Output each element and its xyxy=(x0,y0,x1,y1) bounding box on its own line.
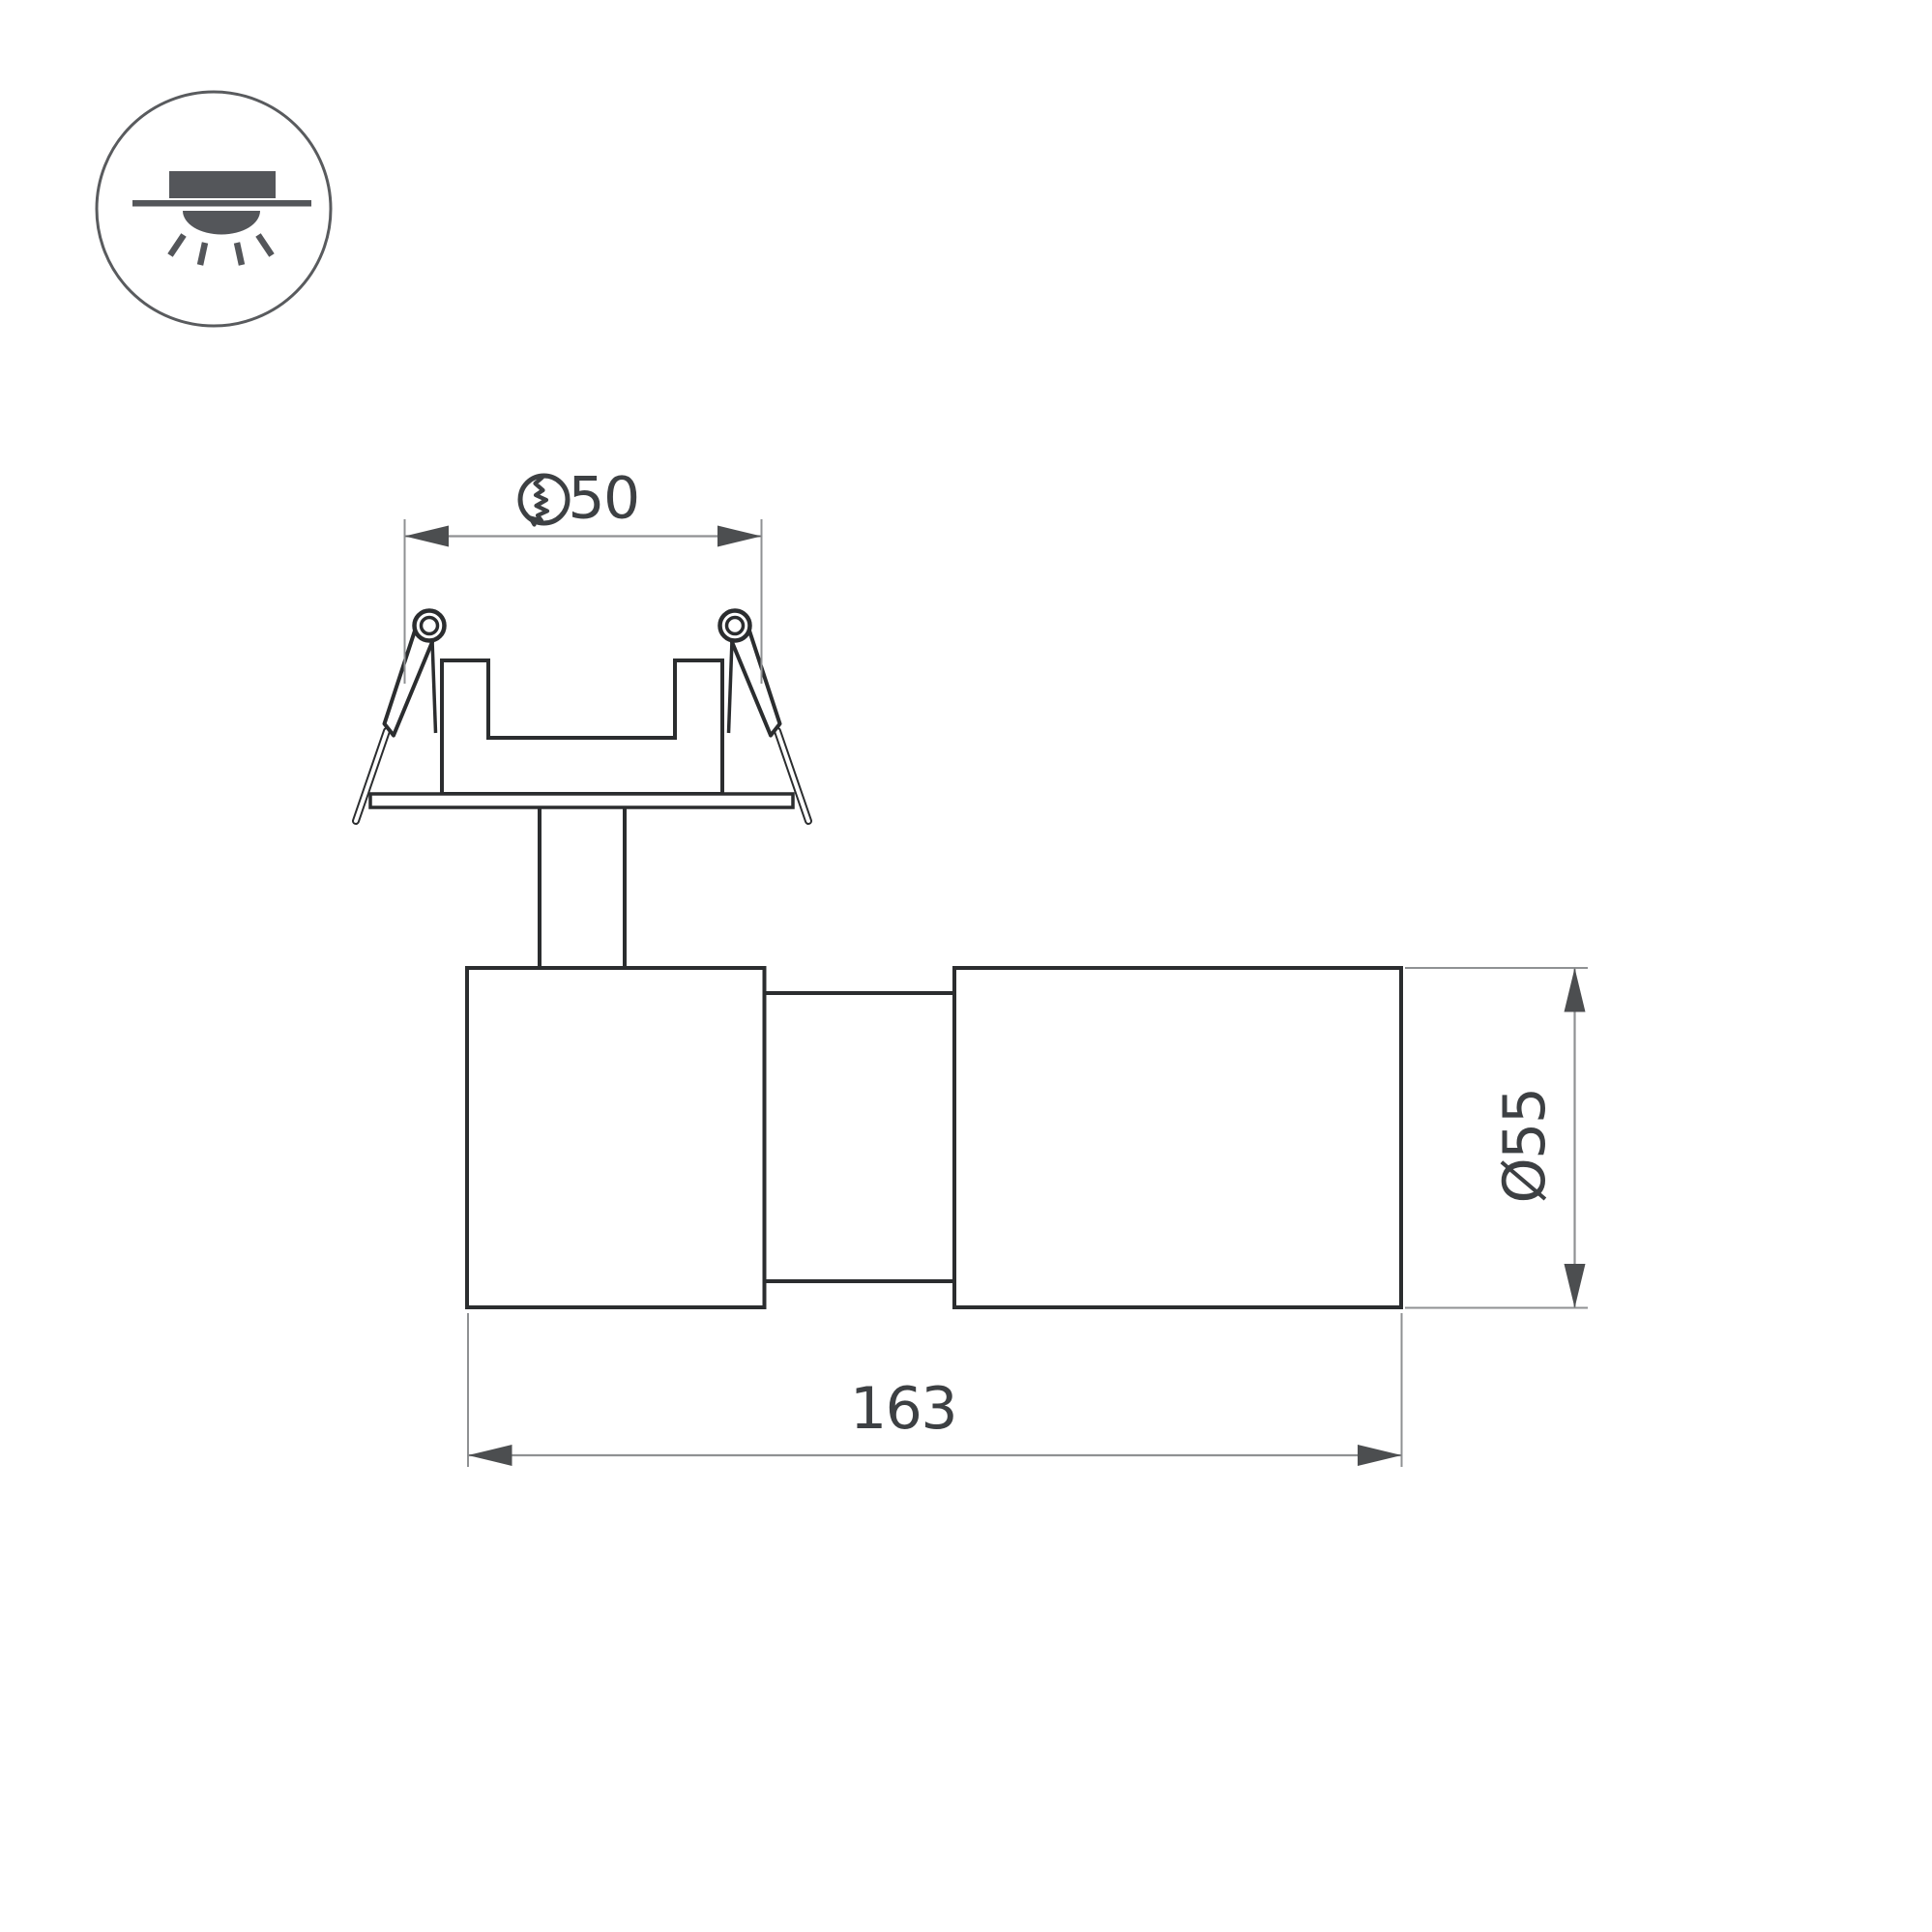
icon-fixture-body xyxy=(169,171,276,198)
body-front-section xyxy=(954,968,1401,1307)
hole-cutout-icon xyxy=(520,476,568,525)
technical-drawing-canvas: 50 163 Ø55 xyxy=(0,0,1932,1932)
clip-pivot-hole xyxy=(422,618,438,634)
clip-inner-spring xyxy=(432,640,436,733)
body-joint-section xyxy=(765,993,955,1281)
cutout-dimension-label: 50 xyxy=(568,465,638,533)
length-dimension: 163 xyxy=(468,1313,1402,1467)
dimension-arrow-right xyxy=(717,526,762,547)
length-dimension-label: 163 xyxy=(850,1375,956,1443)
bracket-housing xyxy=(442,660,722,794)
spring-clip-left xyxy=(356,611,445,822)
body-rear-section xyxy=(467,968,765,1307)
icon-lamp-dome xyxy=(183,211,260,234)
spring-clip-right xyxy=(720,611,809,822)
bracket-flange xyxy=(370,794,793,807)
diameter-dimension: Ø55 xyxy=(1405,968,1588,1308)
icon-light-ray xyxy=(258,235,272,255)
icon-light-ray xyxy=(237,243,242,265)
clip-inner-spring xyxy=(729,640,733,733)
dimension-arrow-bottom xyxy=(1565,1264,1586,1308)
diameter-dimension-label: Ø55 xyxy=(1491,1088,1559,1203)
dimension-arrow-left xyxy=(405,526,450,547)
icon-light-ray xyxy=(170,235,184,255)
dimension-arrow-right xyxy=(1358,1445,1402,1466)
dimension-arrow-left xyxy=(468,1445,512,1466)
icon-ceiling-line xyxy=(132,200,311,207)
luminaire-body xyxy=(467,968,1401,1307)
clip-pivot-hole xyxy=(727,618,744,634)
drawing-page: 50 163 Ø55 xyxy=(0,0,1932,1932)
icon-circle xyxy=(97,92,331,326)
recessed-downlight-icon xyxy=(97,92,331,326)
cutout-dimension: 50 xyxy=(405,465,762,685)
icon-light-ray xyxy=(200,243,205,265)
cutout-symbol-jag xyxy=(531,478,548,525)
mounting-bracket-assembly xyxy=(356,611,808,822)
dimension-arrow-top xyxy=(1565,968,1586,1012)
stem xyxy=(540,806,625,969)
